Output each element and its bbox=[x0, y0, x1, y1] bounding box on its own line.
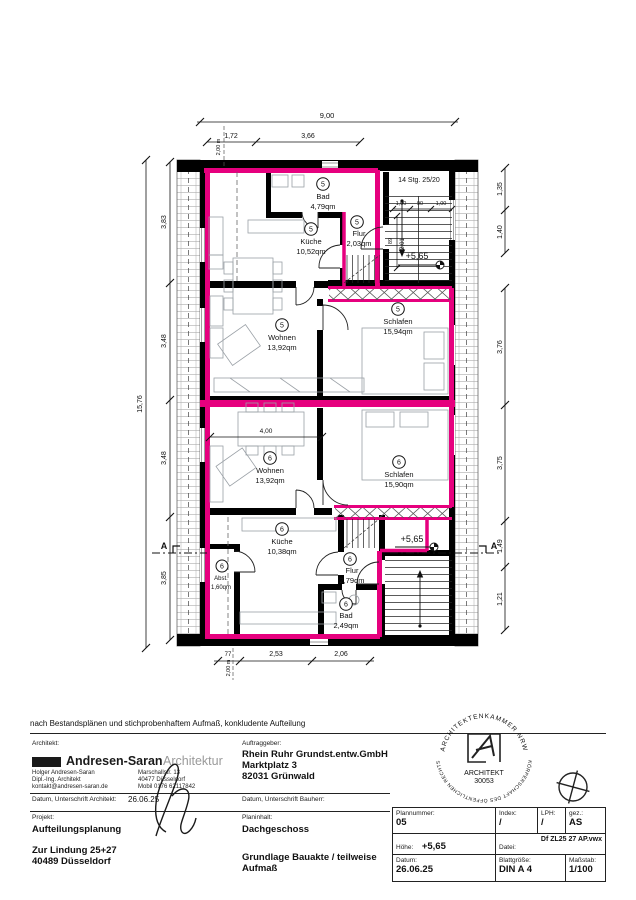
datum-value: 26.06.25 bbox=[396, 864, 492, 875]
datei-value: Df ZL25 27 AP.vwx bbox=[541, 836, 602, 843]
room-name: Küche bbox=[300, 237, 321, 246]
datei-label: Datei: bbox=[499, 844, 516, 851]
dim-wohnen6-width: 4,00 bbox=[260, 428, 273, 435]
hoehe-value: +5,65 bbox=[422, 841, 446, 852]
architect-title: Dipl.-Ing. Architekt bbox=[32, 777, 81, 784]
room-name: Schlafen bbox=[384, 470, 413, 479]
dim-right-seg5: 1,49 bbox=[497, 539, 504, 553]
unit-number: 5 bbox=[309, 227, 313, 234]
blattgroesse-label: Blattgröße: bbox=[499, 857, 562, 864]
room-name: Küche bbox=[271, 537, 292, 546]
massstab-value: 1/100 bbox=[569, 864, 602, 875]
room-area: 4,79qm bbox=[310, 202, 335, 211]
dim-stair3: 1,00 bbox=[436, 201, 447, 207]
stair-count-label: 14 Stg. 25/20 bbox=[398, 177, 440, 184]
architect-date-label: Datum, Unterschrift Architekt: bbox=[32, 796, 117, 803]
gez-label: gez.: bbox=[569, 810, 602, 817]
lph-cell: LPH: / bbox=[537, 807, 566, 834]
rule-architect-date bbox=[30, 793, 390, 794]
dim-right-seg2: 1,40 bbox=[497, 225, 504, 239]
architect-logo bbox=[32, 757, 61, 767]
svg-text:ARCHITEKTENKAMMER NRW: ARCHITEKTENKAMMER NRW bbox=[440, 713, 529, 752]
north-symbol bbox=[552, 766, 596, 810]
unit-number: 6 bbox=[220, 564, 224, 571]
lph-value: / bbox=[541, 817, 562, 828]
architect-email[interactable]: kontakt@andresen-saran.de bbox=[32, 784, 108, 791]
section-letter-left: A bbox=[161, 541, 168, 551]
disclaimer-text: nach Bestandsplänen und stichprobenhafte… bbox=[30, 719, 305, 728]
plannummer-value: 05 bbox=[396, 817, 492, 828]
datum-cell: Datum: 26.06.25 bbox=[392, 854, 496, 882]
client-label: Auftraggeber: bbox=[242, 740, 281, 747]
gez-value: AS bbox=[569, 817, 602, 828]
client-city: 82031 Grünwald bbox=[242, 771, 315, 782]
level-value: +5,65 bbox=[406, 251, 429, 261]
client-date-label: Datum, Unterschrift Bauherr: bbox=[242, 796, 325, 803]
unit-number: 6 bbox=[268, 456, 272, 463]
dim-left-seg4: 3,85 bbox=[161, 571, 168, 585]
datum-label: Datum: bbox=[396, 857, 492, 864]
dim-right-seg4: 3,75 bbox=[497, 456, 504, 470]
attic-stair-flur6 bbox=[344, 519, 379, 548]
room-name: Bad bbox=[316, 192, 329, 201]
room-name: Flur bbox=[353, 229, 366, 238]
stairwell-bottom bbox=[385, 558, 452, 632]
dim-right-seg1: 1,35 bbox=[497, 182, 504, 196]
project-name: Aufteilungsplanung bbox=[32, 824, 121, 835]
datei-cell: Datei: Df ZL25 27 AP.vwx bbox=[495, 833, 606, 855]
architect-signature bbox=[138, 760, 210, 838]
unit-number: 6 bbox=[344, 602, 348, 609]
unit-number: 5 bbox=[280, 323, 284, 330]
unit-number: 5 bbox=[396, 307, 400, 314]
dim-top-seg2: 3,66 bbox=[301, 133, 315, 140]
hoehe-cell: Höhe: +5,65 bbox=[392, 833, 496, 855]
content-basis: Grundlage Bauakte / teilweise Aufmaß bbox=[242, 852, 392, 874]
room-area: 10,38qm bbox=[267, 547, 296, 556]
project-label: Projekt: bbox=[32, 814, 54, 821]
drawing-sheet: 5 Bad 4,79qm 5 Küche 10,52qm 5 Flur 2,03… bbox=[0, 0, 636, 900]
hoehe-label: Höhe: bbox=[396, 844, 413, 851]
dim-stair-v1: 89 bbox=[388, 238, 394, 244]
index-cell: Index: / bbox=[495, 807, 538, 834]
room-name: Flur bbox=[346, 566, 359, 575]
client-street: Marktplatz 3 bbox=[242, 760, 297, 771]
dim-left-total: 15,76 bbox=[137, 395, 144, 413]
architect-label: Architekt: bbox=[32, 740, 59, 747]
room-area: 1,60qm bbox=[211, 585, 231, 591]
project-city: 40489 Düsseldorf bbox=[32, 856, 111, 867]
unit-number: 5 bbox=[355, 220, 359, 227]
room-name: Wohnen bbox=[268, 333, 296, 342]
room-name: Abst. bbox=[214, 576, 228, 582]
dim-stair1: 1,00 bbox=[396, 201, 407, 207]
title-block: nach Bestandsplänen und stichprobenhafte… bbox=[0, 712, 636, 900]
unit-number: 6 bbox=[348, 557, 352, 564]
unit-number: 6 bbox=[397, 460, 401, 467]
stamp-number: 30053 bbox=[474, 778, 494, 785]
dim-headroom-top: 2,00 m bbox=[216, 138, 222, 155]
dim-stair-v2: 2,01 bbox=[400, 238, 406, 250]
level-value: +5,65 bbox=[401, 534, 424, 544]
room-name: Wohnen bbox=[256, 466, 284, 475]
stamp-center-text: ARCHITEKT bbox=[464, 770, 504, 777]
room-area: 2,79qm bbox=[339, 576, 364, 585]
unit-number: 6 bbox=[280, 527, 284, 534]
dim-left-seg1: 3,83 bbox=[161, 215, 168, 229]
content-name: Dachgeschoss bbox=[242, 824, 309, 835]
client-name: Rhein Ruhr Grundst.entw.GmbH bbox=[242, 749, 388, 760]
plannummer-cell: Plannummer: 05 bbox=[392, 807, 496, 834]
room-area: 13,92qm bbox=[255, 476, 284, 485]
dim-bottom-seg1: 77 bbox=[225, 652, 232, 658]
stamp-arc-top: ARCHITEKTENKAMMER NRW bbox=[440, 713, 529, 752]
massstab-label: Maßstab: bbox=[569, 857, 602, 864]
room-name: Schlafen bbox=[383, 317, 412, 326]
content-label: Planinhalt: bbox=[242, 814, 272, 821]
dim-bottom-seg3: 2,06 bbox=[334, 651, 348, 658]
dim-left-seg3: 3,48 bbox=[161, 451, 168, 465]
blattgroesse-value: DIN A 4 bbox=[499, 864, 562, 875]
plannummer-label: Plannummer: bbox=[396, 810, 492, 817]
massstab-cell: Maßstab: 1/100 bbox=[565, 854, 606, 882]
dim-left-seg2: 3,48 bbox=[161, 334, 168, 348]
blattgroesse-cell: Blattgröße: DIN A 4 bbox=[495, 854, 566, 882]
attic-stair-flur5 bbox=[344, 255, 380, 283]
gez-cell: gez.: AS bbox=[565, 807, 606, 834]
index-value: / bbox=[499, 817, 534, 828]
architect-person: Holger Andresen-Saran bbox=[32, 770, 95, 777]
index-label: Index: bbox=[499, 810, 534, 817]
dim-bottom-seg2: 2,53 bbox=[269, 651, 283, 658]
room-area: 10,52qm bbox=[296, 247, 325, 256]
room-area: 2,03qm bbox=[346, 239, 371, 248]
room-name: Bad bbox=[339, 611, 352, 620]
dim-top-seg1: 1,72 bbox=[224, 133, 238, 140]
room-area: 13,92qm bbox=[267, 343, 296, 352]
rule-project bbox=[30, 811, 390, 812]
lph-label: LPH: bbox=[541, 810, 562, 817]
dim-right-seg3: 3,76 bbox=[497, 340, 504, 354]
unit-number: 5 bbox=[321, 182, 325, 189]
room-area: 15,94qm bbox=[383, 327, 412, 336]
dim-headroom-bottom: 2,00 m bbox=[226, 659, 232, 676]
dim-top-total: 9,00 bbox=[320, 111, 335, 120]
room-area: 15,90qm bbox=[384, 480, 413, 489]
floor-plan: 5 Bad 4,79qm 5 Küche 10,52qm 5 Flur 2,03… bbox=[0, 0, 636, 712]
dim-right-seg6: 1,21 bbox=[497, 592, 504, 606]
project-street: Zur Lindung 25+27 bbox=[32, 845, 117, 856]
room-area: 2,49qm bbox=[333, 621, 358, 630]
dim-stair2: 90 bbox=[417, 201, 423, 207]
